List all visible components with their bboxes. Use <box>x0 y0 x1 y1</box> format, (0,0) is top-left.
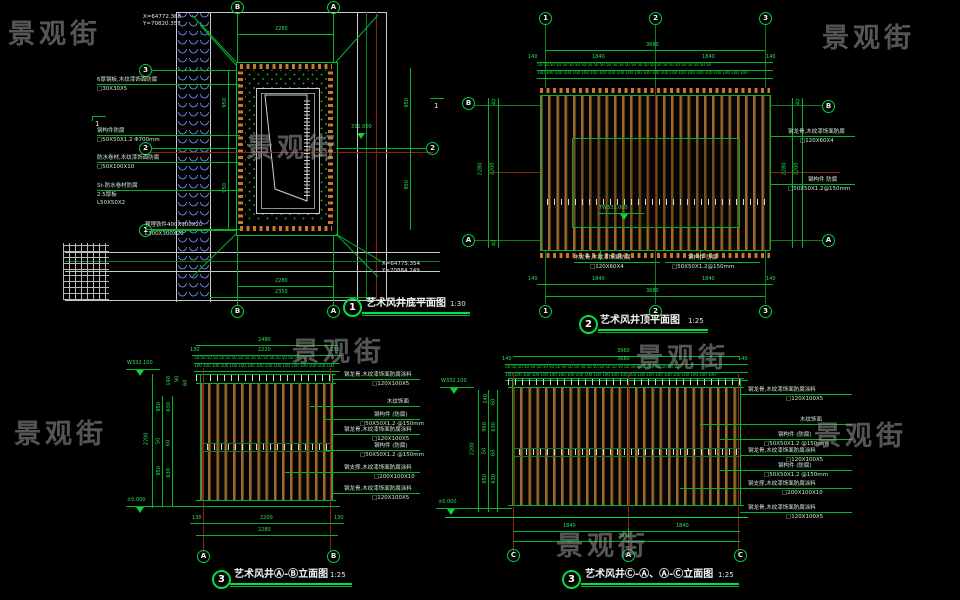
annotation: 预埋铁件400X300X20 <box>145 222 203 228</box>
dim-label: 2280 <box>275 279 288 285</box>
dim-label: 40 <box>492 240 498 246</box>
line <box>512 456 740 457</box>
line <box>194 371 340 372</box>
line <box>740 378 741 505</box>
annotation: □50X50X1.2 @150mm <box>360 452 424 458</box>
line <box>162 396 163 506</box>
line <box>478 390 479 512</box>
elevation-triangle <box>620 214 628 220</box>
svg-shape <box>192 15 236 62</box>
line <box>92 116 106 117</box>
dim-label: 2220 <box>258 348 271 354</box>
grid-bubble: B <box>231 305 244 318</box>
dim-label: 950 <box>483 474 489 484</box>
annotation: □120X100X5 <box>372 436 409 442</box>
line <box>488 390 489 512</box>
grid-bubble: 1 <box>539 12 552 25</box>
coordinate-label: Y=70820.357 <box>143 21 181 27</box>
line <box>740 455 852 456</box>
elevation-triangle <box>357 133 365 139</box>
grid-bubble: B <box>231 1 244 14</box>
annotation: L300X300X20 <box>145 231 184 237</box>
line <box>581 586 739 587</box>
dim-label: 2200 <box>144 433 150 446</box>
dim-label: 630 <box>167 468 173 478</box>
drawing-scale: 1:30 <box>450 300 466 308</box>
line <box>332 379 420 380</box>
line <box>513 372 514 552</box>
top-rail <box>196 375 336 381</box>
grid-bubble: 2 <box>649 12 662 25</box>
dim-label: 50 <box>156 438 162 444</box>
elevation-triangle <box>447 509 455 515</box>
watermark: 景观街 <box>822 16 915 55</box>
grid-bubble: A <box>327 305 340 318</box>
annotation: □50X50X1.2 Φ700mm <box>97 137 160 143</box>
dim-label: 130 <box>190 348 200 354</box>
line <box>508 378 744 379</box>
dim-label: 1840 <box>676 524 689 530</box>
dim-label: 2200 <box>260 516 273 522</box>
annotation: 木纹饰面 <box>387 399 409 405</box>
dim-label: 950 <box>223 183 229 193</box>
dim-label: 3680 <box>646 289 659 295</box>
line <box>332 493 420 494</box>
line <box>430 98 444 99</box>
line <box>655 88 656 253</box>
dim-row-100: 100 100 100 100 100 100 100 100 100 100 … <box>537 71 773 77</box>
elevation-triangle <box>136 507 144 513</box>
dim-label: 40 <box>796 99 802 105</box>
line <box>802 98 803 248</box>
grid-bubble: A <box>462 234 475 247</box>
dim-label: 2280 <box>275 27 288 33</box>
drawing-scale: 1:25 <box>718 571 734 579</box>
svg-shape <box>336 15 378 62</box>
dim-label: 950 <box>483 422 489 432</box>
annotation: 钢构件 防腐 <box>688 255 717 261</box>
dim-label: 630 <box>167 402 173 412</box>
annotation: □120X100X5 <box>372 495 409 501</box>
svg-shape <box>192 234 236 277</box>
annotation: □30X30X5 <box>97 86 127 92</box>
grid-bubble: 3 <box>139 64 152 77</box>
annotation: 钢构件 (防腐) <box>374 412 408 418</box>
elevation-triangle <box>450 388 458 394</box>
line <box>200 451 332 452</box>
drawing-scale: 1:25 <box>688 317 704 325</box>
annotation: L50X50X2 <box>97 200 125 206</box>
line <box>151 70 236 71</box>
line <box>237 13 238 62</box>
annotation: 钢构件 (防腐) <box>778 432 812 438</box>
line <box>126 506 340 507</box>
line <box>145 229 240 230</box>
line <box>97 190 240 191</box>
dim-label: 950 <box>157 466 163 476</box>
annotation: □120X100X5 <box>786 514 823 520</box>
cad-sheet: B A B A 3 2 1 2 1 1 X=64772.368 Y=70820.… <box>0 0 960 600</box>
line <box>770 95 771 250</box>
dim-label: 1840 <box>702 55 715 61</box>
watermark: 景观街 <box>8 12 101 51</box>
dim-label: 60 <box>183 380 189 386</box>
dim-label: 130 <box>334 516 344 522</box>
dim-label: 140 <box>502 357 512 363</box>
grid-bubble: 3 <box>759 305 772 318</box>
dim-label: 140 <box>528 277 538 283</box>
drawing-title: 艺术风井底平面图 <box>366 298 446 310</box>
line <box>336 148 426 149</box>
annotation: 防水卷材,木纹漆饰面防腐 <box>97 155 159 161</box>
annotation: □120X100X5 <box>786 396 823 402</box>
line <box>574 262 660 263</box>
line <box>333 13 334 62</box>
watermark: 景观街 <box>292 330 385 369</box>
line <box>545 296 765 297</box>
dim-label: 140 <box>167 376 173 386</box>
drawing-number: 1 <box>343 298 362 317</box>
line <box>310 406 420 407</box>
annotation: 钢龙骨,木纹漆饰面防腐涂料 <box>344 372 412 378</box>
line <box>228 70 229 230</box>
dim-label: 40 <box>492 99 498 105</box>
coordinate-label: X=64775.354 <box>382 261 420 267</box>
line <box>172 396 173 506</box>
line <box>237 286 333 287</box>
line <box>200 374 201 500</box>
line <box>324 450 420 451</box>
line <box>362 315 470 316</box>
grid-bubble: C <box>734 549 747 562</box>
drawing-title: 艺术风井顶平面图 <box>600 315 680 327</box>
coordinate-label: Y=70884.249 <box>382 268 420 274</box>
dim-label: 950 <box>405 98 411 108</box>
annotation: □120X60X4 <box>800 138 834 144</box>
annotation: 钢构件防腐 <box>97 128 125 134</box>
annotation: 钢龙骨,木纹漆饰面防腐涂料 <box>344 486 412 492</box>
svg-shape <box>200 25 236 65</box>
line <box>237 34 333 35</box>
dim-label: 2280 <box>782 163 788 176</box>
section-mark: 1 <box>434 102 438 110</box>
dim-label: 2200 <box>470 443 476 456</box>
grid-bubble: 2 <box>139 142 152 155</box>
line <box>324 419 420 420</box>
dim-label: 3960 <box>617 349 630 355</box>
line <box>540 95 541 250</box>
dim-label: 950 <box>405 180 411 190</box>
line <box>410 68 411 230</box>
line <box>497 390 498 512</box>
line <box>720 470 852 471</box>
line <box>581 583 739 585</box>
line <box>97 135 240 136</box>
annotation: □120X60X4 <box>590 264 624 270</box>
annotation: □50X100X10 <box>97 164 134 170</box>
line <box>770 184 855 185</box>
line <box>196 374 336 375</box>
dim-label: 1840 <box>592 277 605 283</box>
dim-label: 90 <box>175 376 181 382</box>
mid-rail <box>200 444 332 450</box>
dim-label: 60 <box>166 440 172 446</box>
watermark: 景观街 <box>814 414 907 453</box>
elevation-marker: W332.100 <box>441 379 467 385</box>
elevation-marker: ±0.000 <box>127 498 146 504</box>
dim-label: 2200 <box>490 163 496 176</box>
dim-label: 60 <box>491 450 497 456</box>
annotation: 木龙骨,木纹漆饰面防腐 <box>574 255 631 261</box>
dim-label: 3680 <box>646 43 659 49</box>
grid-bubble: B <box>822 100 835 113</box>
grid-bubble: 3 <box>759 12 772 25</box>
line <box>237 235 238 305</box>
mid-rail <box>512 449 740 455</box>
annotation: 钢龙骨,木纹漆饰面防腐涂料 <box>748 505 816 511</box>
line <box>508 505 744 506</box>
dim-label: 2480 <box>258 338 271 344</box>
annotation: □200X100X10 <box>782 490 823 496</box>
dim-label: 630 <box>492 422 498 432</box>
dim-label: 130 <box>192 516 202 522</box>
drawing-scale: 1:25 <box>330 571 346 579</box>
line <box>190 523 344 524</box>
line <box>230 583 352 585</box>
dim-label: 2350 <box>275 290 288 296</box>
line <box>545 50 765 51</box>
line <box>152 374 153 508</box>
dim-label: 140 <box>484 394 490 404</box>
dim-row-50: 50 50 50 50 50 50 50 50 50 50 50 50 50 5… <box>537 63 773 69</box>
drawing-title: 艺术风井Ⓒ-Ⓐ、Ⓐ-Ⓒ立面图 <box>585 569 713 581</box>
line <box>740 394 852 395</box>
line <box>680 488 852 489</box>
dim-label: 950 <box>223 98 229 108</box>
line <box>200 443 332 444</box>
annotation: 2.5厚板 <box>97 192 117 198</box>
line <box>537 78 773 79</box>
drawing-number: 2 <box>579 315 598 334</box>
elevation-marker: TW331.000 <box>599 206 628 212</box>
dim-label: 630 <box>492 474 498 484</box>
line <box>330 368 331 552</box>
line <box>512 448 740 449</box>
line <box>362 312 470 314</box>
dim-label: 50 <box>482 448 488 454</box>
dim-label: 140 <box>766 277 776 283</box>
elevation-slats <box>200 384 332 500</box>
dim-label: 60 <box>491 399 497 405</box>
dim-label: 3680 <box>617 357 630 363</box>
line <box>97 162 240 163</box>
grid-bubble: C <box>507 549 520 562</box>
drawing-number: 3 <box>212 570 231 589</box>
elevation-marker: W332.100 <box>127 361 153 367</box>
annotation: □120X100X5 <box>372 381 409 387</box>
grid-bubble: B <box>327 550 340 563</box>
line <box>498 98 499 248</box>
elevation-triangle <box>136 370 144 376</box>
grid-bubble: 1 <box>539 305 552 318</box>
grid-bubble: B <box>462 97 475 110</box>
watermark: 景观街 <box>636 336 729 375</box>
line <box>740 512 852 513</box>
well-opening <box>572 138 740 228</box>
grid-bubble: A <box>822 234 835 247</box>
grid-bubble: A <box>197 550 210 563</box>
grid-bubble: A <box>327 1 340 14</box>
dim-label: 1840 <box>702 277 715 283</box>
annotation: 钢构件 (防腐) <box>374 443 408 449</box>
annotation: 钢支撑,木纹漆饰面防腐涂料 <box>748 481 816 487</box>
line <box>203 368 204 552</box>
line <box>770 136 855 137</box>
annotation: 钢龙骨,木纹漆饰面防腐涂料 <box>344 427 412 433</box>
annotation: St-防水卷材防腐 <box>97 183 138 189</box>
annotation: 钢支撑,木纹漆饰面防腐涂料 <box>344 465 412 471</box>
top-rail <box>508 379 744 385</box>
line <box>97 84 240 85</box>
section-mark: 1 <box>95 120 99 128</box>
annotation: 钢构件 防腐 <box>808 177 837 183</box>
drawing-title: 艺术风井Ⓐ-Ⓑ立面图 <box>234 569 328 581</box>
elevation-marker: 331.000 <box>351 125 372 131</box>
watermark: 景观街 <box>246 126 339 165</box>
dim-label: 1840 <box>592 55 605 61</box>
coordinate-label: X=64772.368 <box>143 14 181 20</box>
dim-label: 2280 <box>478 163 484 176</box>
line <box>665 262 760 263</box>
dim-label: 2200 <box>794 163 800 176</box>
line <box>151 148 236 149</box>
line <box>332 374 333 500</box>
dim-label: 140 <box>766 55 776 61</box>
drawing-number: 3 <box>562 570 581 589</box>
watermark: 景观街 <box>14 412 107 451</box>
line <box>332 434 420 435</box>
watermark: 景观街 <box>556 524 649 563</box>
line <box>196 500 336 501</box>
annotation: 钢龙骨,木纹漆饰面防腐涂料 <box>748 448 816 454</box>
elevation-marker: ±0.000 <box>438 500 457 506</box>
line <box>333 235 334 305</box>
dim-label: 950 <box>157 402 163 412</box>
annotation: □50X50X1.2 @150mm <box>764 472 828 478</box>
dim-label: 140 <box>738 357 748 363</box>
annotation: 钢龙骨,木纹漆饰面防腐涂料 <box>748 387 816 393</box>
annotation: □50X50X1.2@150mm <box>672 264 734 270</box>
annotation: □50X50X1.2@150mm <box>788 186 850 192</box>
line <box>445 517 748 518</box>
annotation: □200X100X10 <box>374 474 415 480</box>
line <box>738 372 739 552</box>
line <box>598 332 708 333</box>
annotation: 6厚钢板,木纹漆饰面防腐 <box>97 77 157 83</box>
annotation: 钢构件 (防腐) <box>778 463 812 469</box>
annotation: 钢龙骨,木纹漆饰面防腐 <box>788 129 845 135</box>
line <box>92 116 93 121</box>
line <box>196 535 338 536</box>
line <box>598 329 708 331</box>
dim-label: 140 <box>528 55 538 61</box>
line <box>285 472 420 473</box>
line <box>230 586 352 587</box>
line <box>537 284 773 285</box>
grid-bubble: 2 <box>426 142 439 155</box>
dim-label: 2280 <box>258 528 271 534</box>
